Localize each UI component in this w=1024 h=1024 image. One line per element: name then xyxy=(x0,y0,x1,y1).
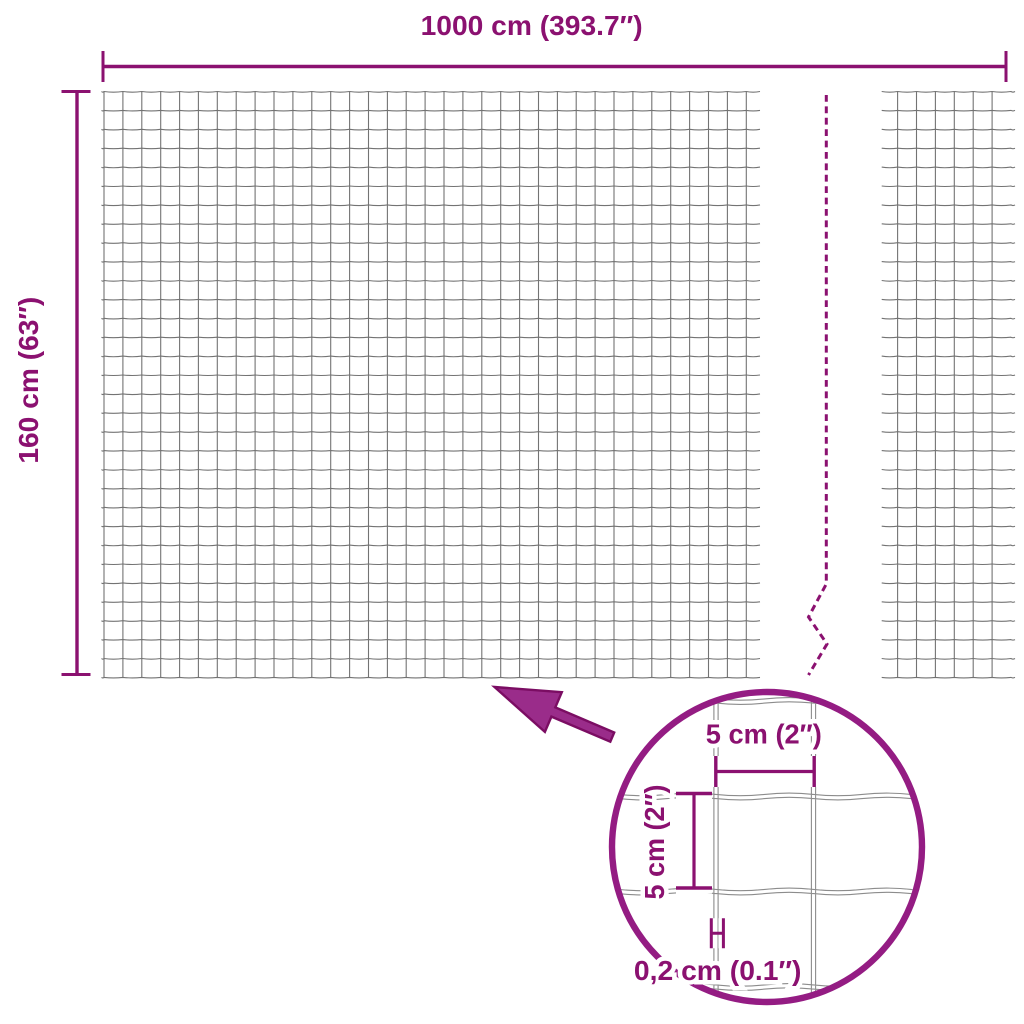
svg-text:5 cm (2″): 5 cm (2″) xyxy=(639,785,670,900)
svg-text:5 cm (2″): 5 cm (2″) xyxy=(706,719,822,750)
svg-text:0,2 cm (0.1″): 0,2 cm (0.1″) xyxy=(634,955,802,986)
svg-text:160 cm (63″): 160 cm (63″) xyxy=(13,297,44,464)
svg-text:1000 cm (393.7″): 1000 cm (393.7″) xyxy=(421,10,643,41)
